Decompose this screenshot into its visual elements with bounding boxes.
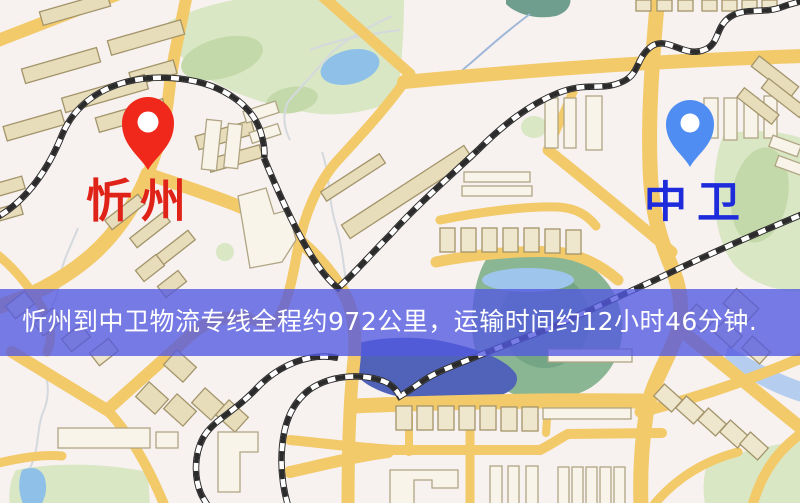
route-banner-text: 忻州到中卫物流专线全程约972公里，运输时间约12小时46分钟. — [0, 289, 800, 355]
route-banner: 忻州到中卫物流专线全程约972公里，运输时间约12小时46分钟. — [0, 289, 800, 356]
origin-label: 忻州 — [86, 178, 194, 224]
logistics-map-image: 忻州 中卫 忻州到中卫物流专线全程约972公里，运输时间约12小时46分钟. — [0, 0, 800, 503]
pond — [19, 468, 46, 503]
map-canvas — [0, 0, 800, 503]
destination-label: 中卫 — [644, 182, 750, 225]
